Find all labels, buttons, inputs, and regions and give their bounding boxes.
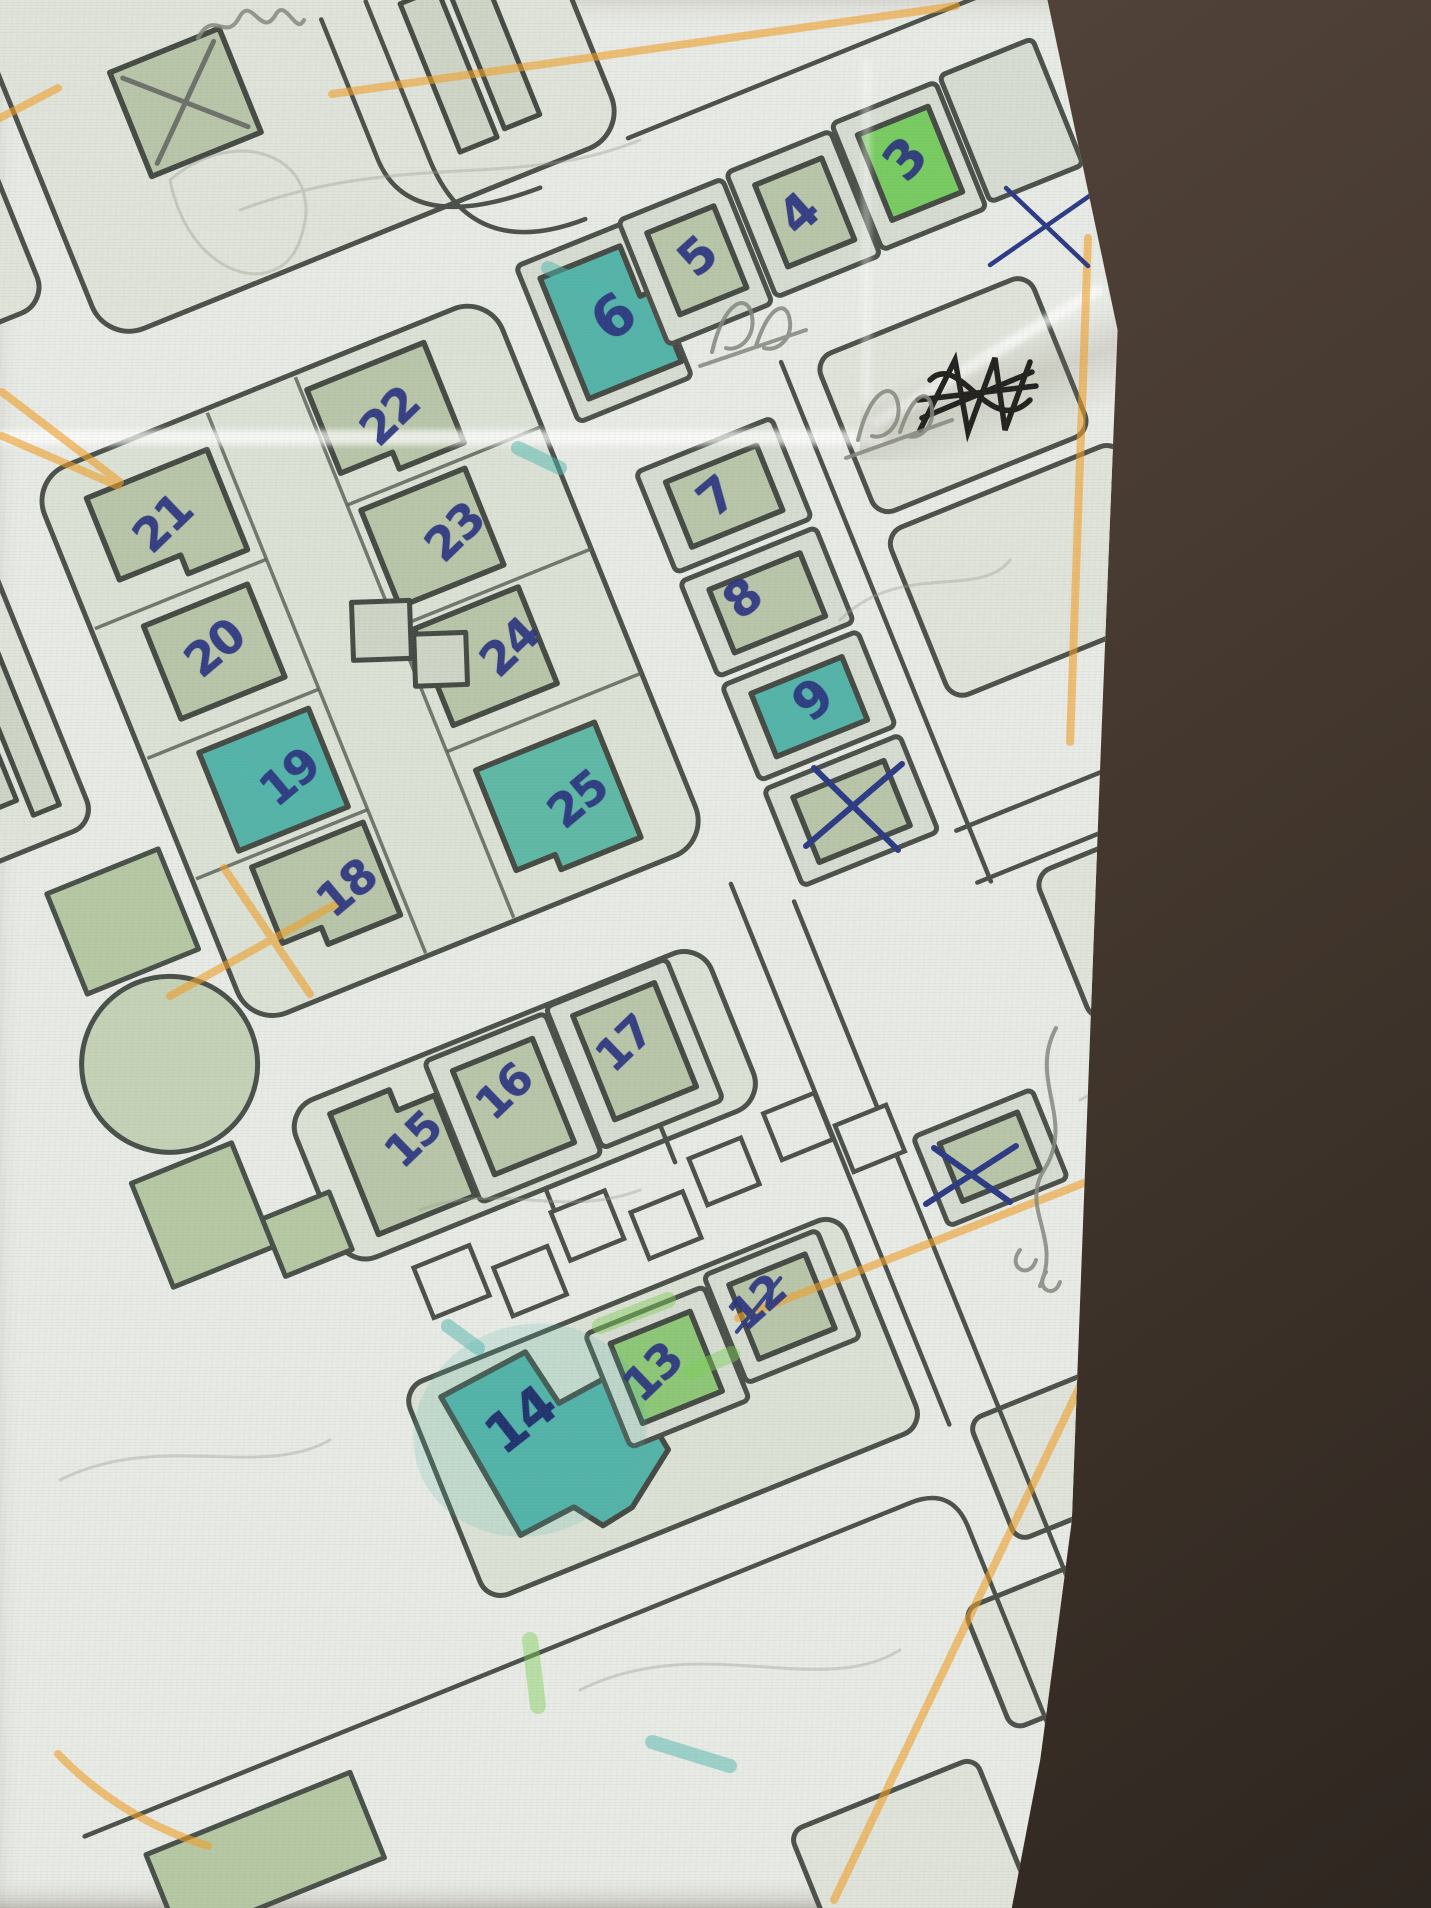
small-crossed-building	[913, 1089, 1068, 1226]
map-vector	[0, 0, 1431, 1908]
map-paper-sheet: 34567891213141516171819202122232425	[0, 0, 1431, 1908]
photo-of-annotated-map: 34567891213141516171819202122232425	[0, 0, 1431, 1908]
printed-map-layer	[0, 0, 1431, 1908]
